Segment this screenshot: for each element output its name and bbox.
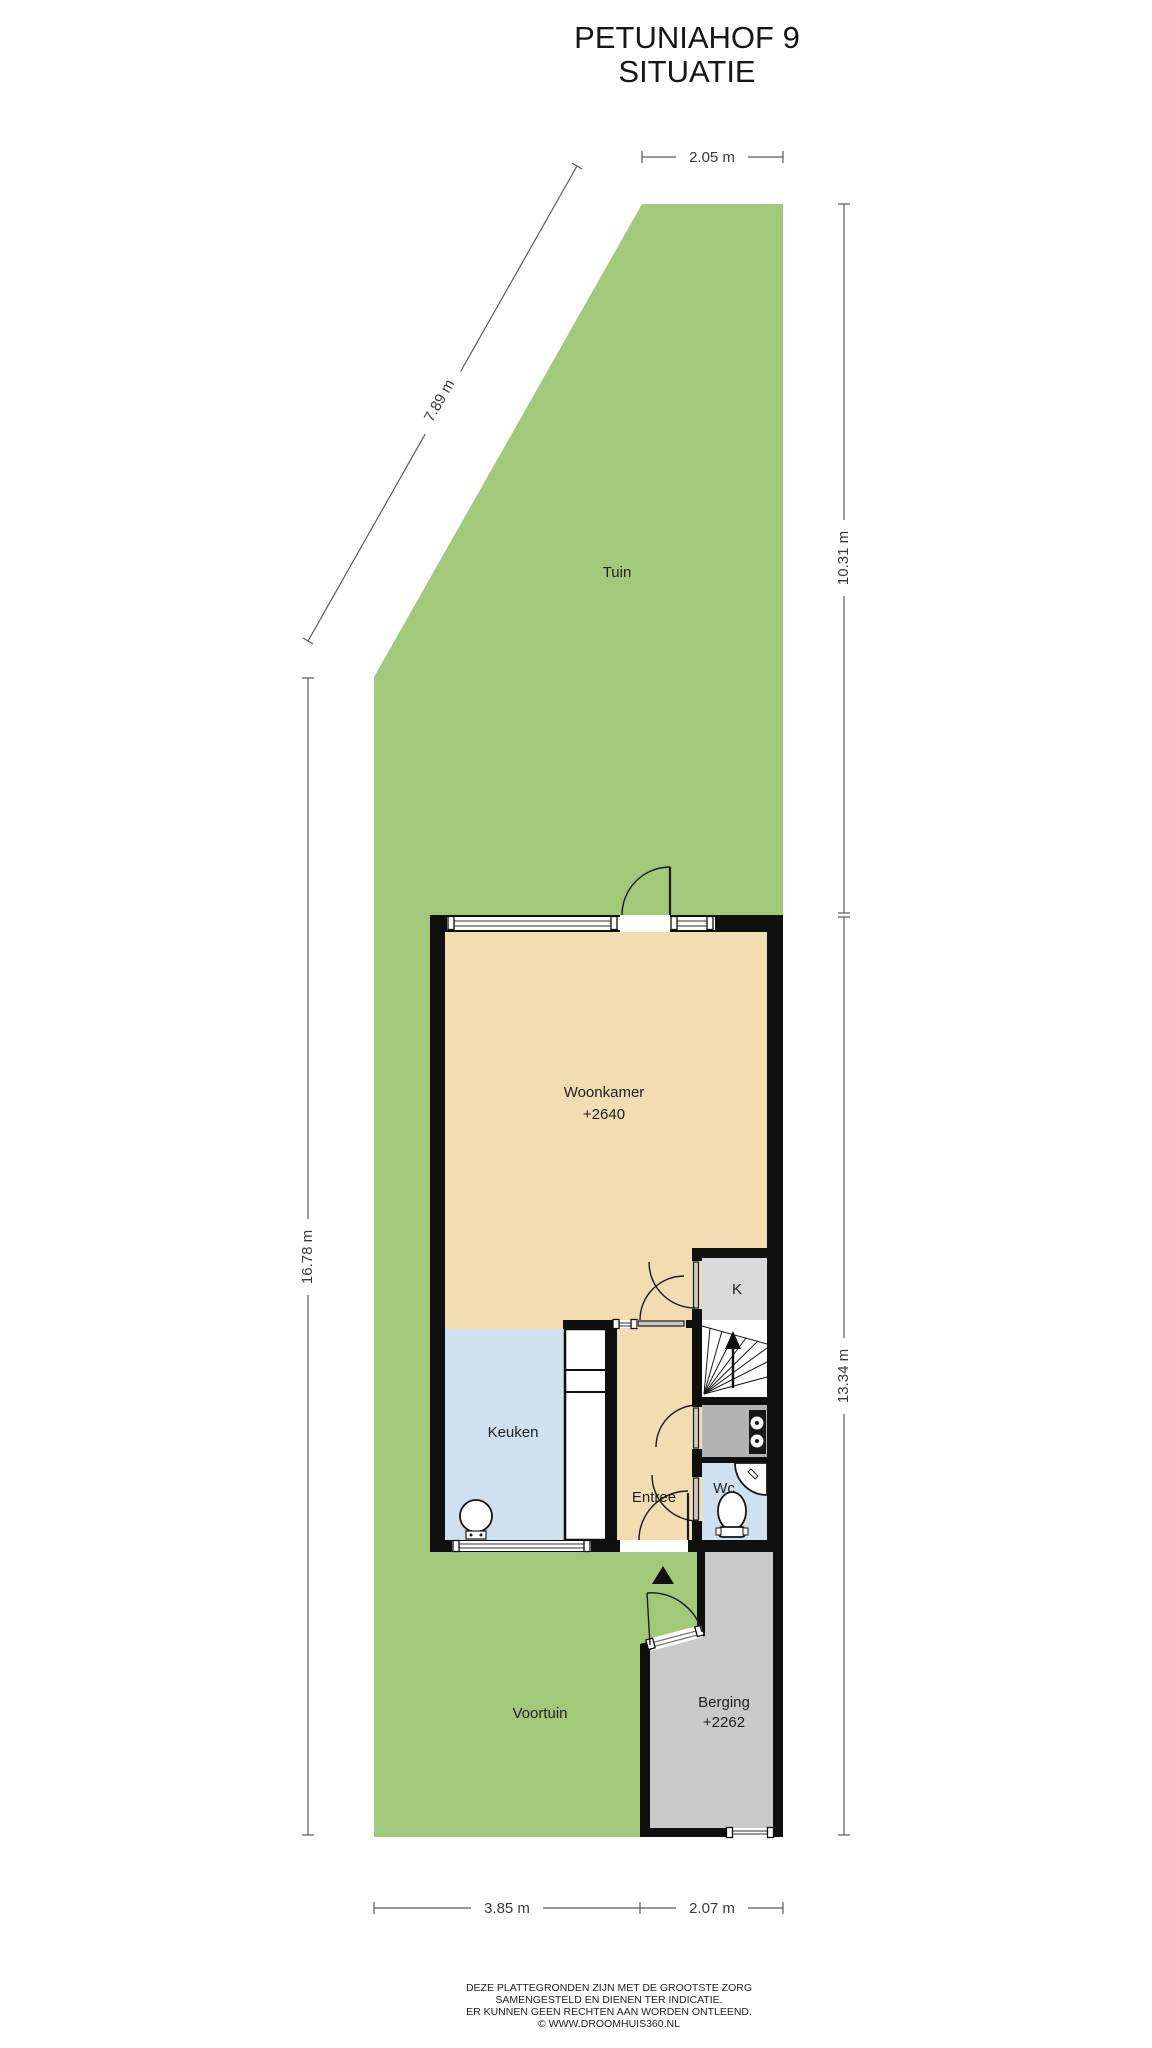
footer-line3: ER KUNNEN GEEN RECHTEN AAN WORDEN ONTLEE… [466, 2006, 752, 2018]
footer-line4: © WWW.DROOMHUIS360.NL [538, 2018, 680, 2030]
stairs [702, 1320, 767, 1397]
berging-window [726, 1828, 774, 1838]
dim-bottom-left-label: 3.85 m [484, 1900, 530, 1917]
woonkamer-label: Woonkamer [564, 1084, 645, 1101]
berging-label: Berging [698, 1694, 750, 1711]
footer-line1: DEZE PLATTEGRONDEN ZIJN MET DE GROOTSTE … [466, 1982, 752, 1994]
wall-below-stairs [702, 1397, 767, 1405]
dim-right-upper-label: 10.31 m [835, 531, 852, 585]
house: K [430, 867, 783, 1552]
dim-bottom-right-label: 2.07 m [689, 1900, 735, 1917]
wc-room: Wc [702, 1463, 767, 1540]
footer-disclaimer: DEZE PLATTEGRONDEN ZIJN MET DE GROOTSTE … [466, 1982, 752, 2030]
tuin-label: Tuin [603, 564, 632, 581]
page-title: PETUNIAHOF 9 SITUATIE [574, 20, 800, 89]
wall-woonkamer-kast [692, 1248, 767, 1258]
dim-top-width-label: 2.05 m [689, 149, 735, 166]
footer-line2: SAMENGESTELD EN DIENEN TER INDICATIE. [495, 1994, 722, 2006]
dimension-top-width: 2.05 m [642, 147, 783, 166]
kitchen-counter [563, 1320, 612, 1540]
title-line2: SITUATIE [618, 54, 755, 89]
berging-elevation: +2262 [703, 1714, 745, 1731]
keuken-label: Keuken [488, 1424, 539, 1441]
dimension-left-side: 16.78 m [295, 678, 316, 1835]
meter-panel-icon [749, 1410, 766, 1454]
toilet-icon [716, 1492, 748, 1537]
wall-keuken-entree [605, 1328, 617, 1540]
meter-cupboard [702, 1405, 767, 1457]
kast-label: K [732, 1281, 742, 1298]
title-line1: PETUNIAHOF 9 [574, 20, 800, 55]
dimension-right-upper: 10.31 m [831, 204, 852, 913]
entree-label: Entree [632, 1489, 676, 1506]
voortuin-label: Voortuin [512, 1705, 567, 1722]
dimension-bottom: 3.85 m 2.07 m [374, 1898, 783, 1917]
floorplan-canvas: PETUNIAHOF 9 SITUATIE Tuin Voortuin 2.05… [0, 0, 1152, 2048]
dimension-right-lower: 13.34 m [831, 917, 852, 1835]
dim-right-lower-label: 13.34 m [835, 1349, 852, 1403]
dim-left-side-label: 16.78 m [299, 1230, 316, 1284]
woonkamer-elevation: +2640 [583, 1106, 625, 1123]
